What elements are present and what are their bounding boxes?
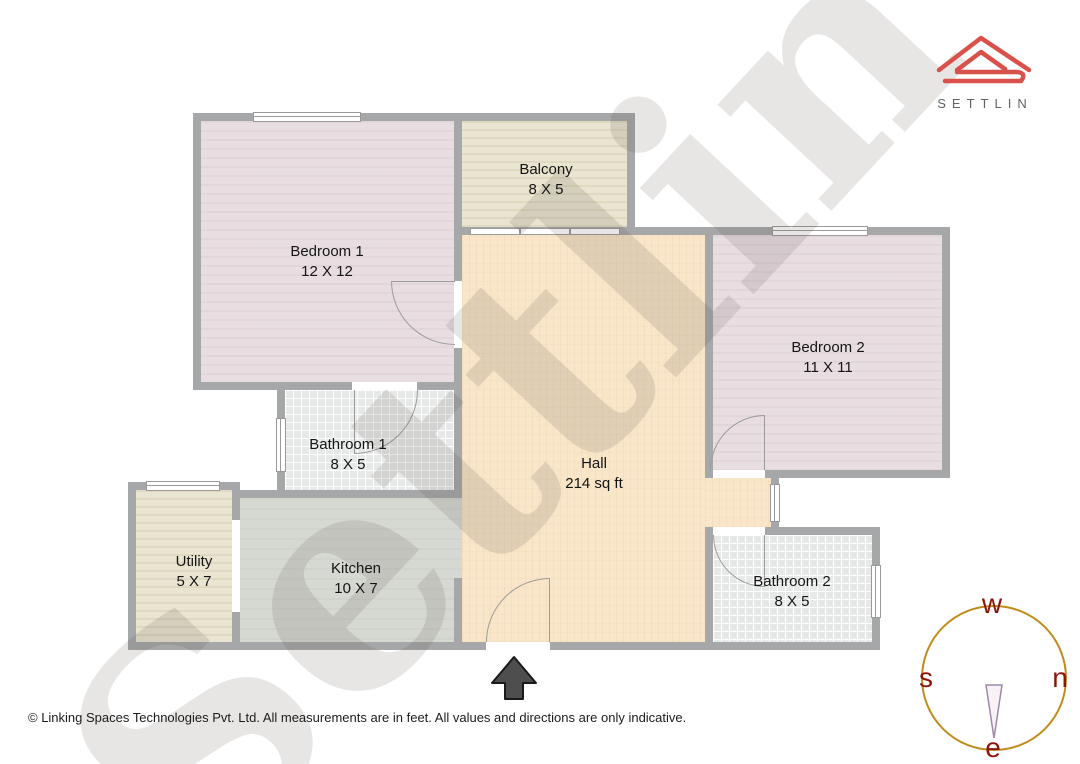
room-dims: 214 sq ft (565, 474, 623, 494)
room-name: Bedroom 2 (791, 339, 864, 356)
room-name: Hall (581, 455, 607, 472)
window-bedroom1 (253, 112, 361, 122)
room-name: Kitchen (331, 560, 381, 577)
room-name: Balcony (519, 161, 572, 178)
footer-disclaimer: © Linking Spaces Technologies Pvt. Ltd. … (28, 710, 686, 725)
window-utility (146, 481, 220, 491)
room-dims: 11 X 11 (791, 358, 864, 378)
room-name: Bathroom 2 (753, 573, 831, 590)
room-hall-passage (705, 478, 771, 527)
wall (765, 527, 880, 535)
label-bathroom1: Bathroom 1 8 X 5 (309, 435, 387, 476)
wall (942, 227, 950, 478)
wall (128, 642, 486, 650)
brand-name: SETTLIN (928, 96, 1042, 111)
compass: w s n e (920, 588, 1070, 764)
room-name: Utility (176, 553, 213, 570)
compass-south: s (919, 664, 933, 692)
room-kitchen-open-edge (454, 498, 462, 578)
label-balcony: Balcony 8 X 5 (519, 160, 572, 201)
wall (454, 113, 462, 281)
wall (454, 348, 462, 498)
room-dims: 8 X 5 (753, 592, 831, 612)
room-hall (462, 235, 705, 642)
compass-west: w (982, 590, 1002, 618)
wall (128, 482, 136, 650)
room-dims: 8 X 5 (519, 180, 572, 200)
window-bathroom1 (276, 418, 286, 472)
label-bedroom1: Bedroom 1 12 X 12 (290, 242, 363, 283)
wall (232, 482, 240, 520)
room-dims: 12 X 12 (290, 262, 363, 282)
wall (627, 113, 635, 235)
window-bathroom2 (871, 565, 881, 618)
entrance-arrow-icon (490, 655, 538, 708)
compass-north: n (1052, 664, 1068, 692)
label-utility: Utility 5 X 7 (176, 552, 213, 593)
floor-plan-page: Settlin Bedroom 1 12 X 12 Balcony 8 X 5 … (0, 0, 1080, 764)
wall (232, 490, 462, 498)
wall (193, 113, 201, 390)
wall (705, 227, 713, 478)
room-dims: 8 X 5 (309, 455, 387, 475)
label-kitchen: Kitchen 10 X 7 (331, 559, 381, 600)
wall (550, 642, 880, 650)
room-dims: 10 X 7 (331, 579, 381, 599)
label-hall: Hall 214 sq ft (565, 454, 623, 495)
wall (232, 612, 240, 650)
window-passage (770, 484, 780, 522)
room-dims: 5 X 7 (176, 572, 213, 592)
wall (454, 578, 462, 650)
sliding-window-balcony (470, 228, 620, 235)
room-name: Bathroom 1 (309, 436, 387, 453)
wall (193, 382, 352, 390)
label-bathroom2: Bathroom 2 8 X 5 (753, 572, 831, 613)
compass-east: e (985, 734, 1001, 762)
label-bedroom2: Bedroom 2 11 X 11 (791, 338, 864, 379)
wall (765, 470, 950, 478)
wall (705, 527, 713, 650)
room-name: Bedroom 1 (290, 243, 363, 260)
window-bedroom2 (772, 226, 868, 236)
